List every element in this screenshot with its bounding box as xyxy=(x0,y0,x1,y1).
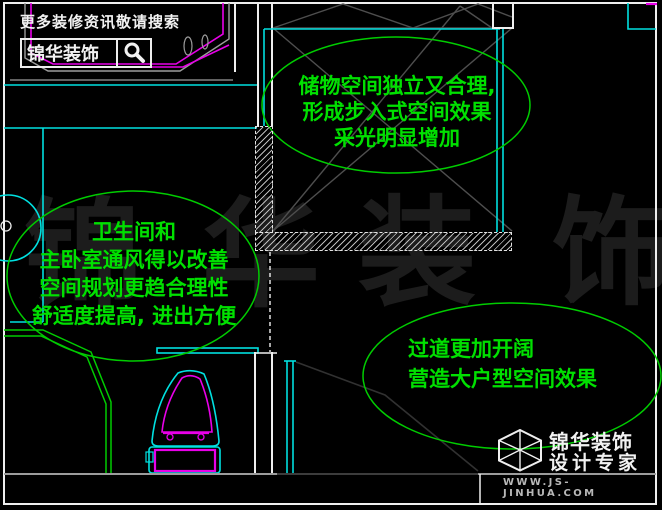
search-banner: 更多装修资讯敬请搜索 锦华装饰 xyxy=(20,11,180,68)
annotation-line: 空间规划更趋合理性 xyxy=(8,274,260,302)
annotation-line: 主卧室通风得以改善 xyxy=(8,246,260,274)
brand-name: 锦华装饰 xyxy=(22,40,116,66)
annotation-line: 采光明显增加 xyxy=(268,125,526,151)
annotation-line: 卫生间和 xyxy=(8,218,260,246)
search-box: 锦华装饰 xyxy=(20,38,152,68)
banner-tagline: 更多装修资讯敬请搜索 xyxy=(20,11,180,32)
toilet xyxy=(146,371,220,473)
shower-screen xyxy=(4,330,111,473)
cube-logo-icon xyxy=(497,429,543,476)
magnifier-icon xyxy=(118,40,150,66)
annotation-closet: 储物空间独立又合理, 形成步入式空间效果 采光明显增加 xyxy=(268,73,526,151)
annotation-line: 过道更加开阔 xyxy=(408,334,658,364)
company-logo: 锦华装饰 设计专家 xyxy=(497,429,641,476)
annotation-line: 储物空间独立又合理, xyxy=(268,73,526,99)
logo-tagline: 设计专家 xyxy=(549,453,641,474)
annotation-line: 营造大户型空间效果 xyxy=(408,364,658,394)
annotation-line: 舒适度提高, 进出方便 xyxy=(8,302,260,330)
logo-brand: 锦华装饰 xyxy=(549,432,641,453)
wall-hatch-horizontal xyxy=(255,232,512,251)
annotation-bathroom: 卫生间和 主卧室通风得以改善 空间规划更趋合理性 舒适度提高, 进出方便 xyxy=(8,218,260,330)
annotation-hallway: 过道更加开阔 营造大户型空间效果 xyxy=(408,334,658,394)
annotation-line: 形成步入式空间效果 xyxy=(268,99,526,125)
website-url: WWW.JS-JINHUA.COM xyxy=(503,477,662,499)
floorplan-promo-image: 锦 华 装 饰 xyxy=(0,0,662,510)
counter-bar xyxy=(157,348,258,353)
